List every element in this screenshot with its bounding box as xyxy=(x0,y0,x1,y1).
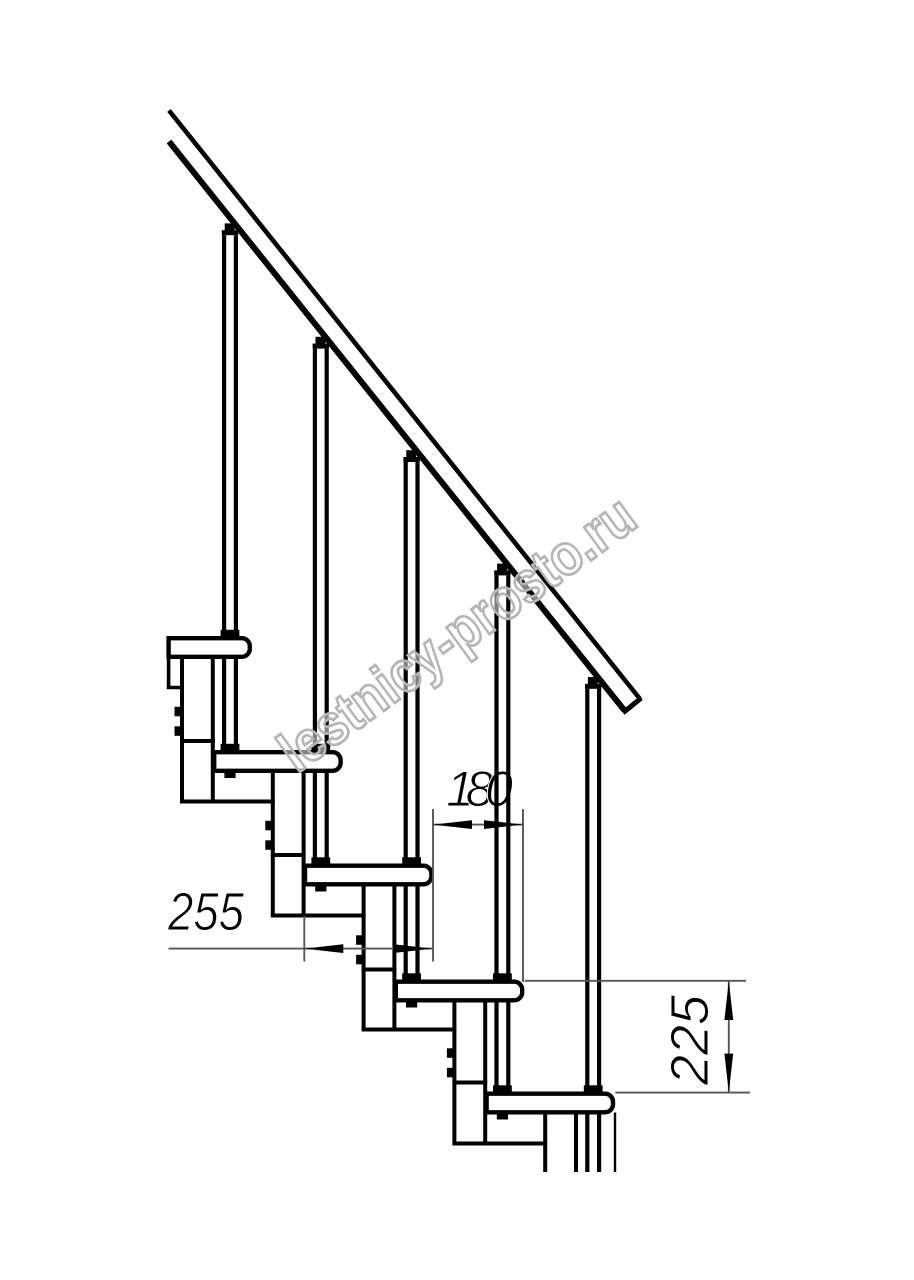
svg-text:255: 255 xyxy=(167,882,245,942)
svg-text:225: 225 xyxy=(660,994,720,1086)
